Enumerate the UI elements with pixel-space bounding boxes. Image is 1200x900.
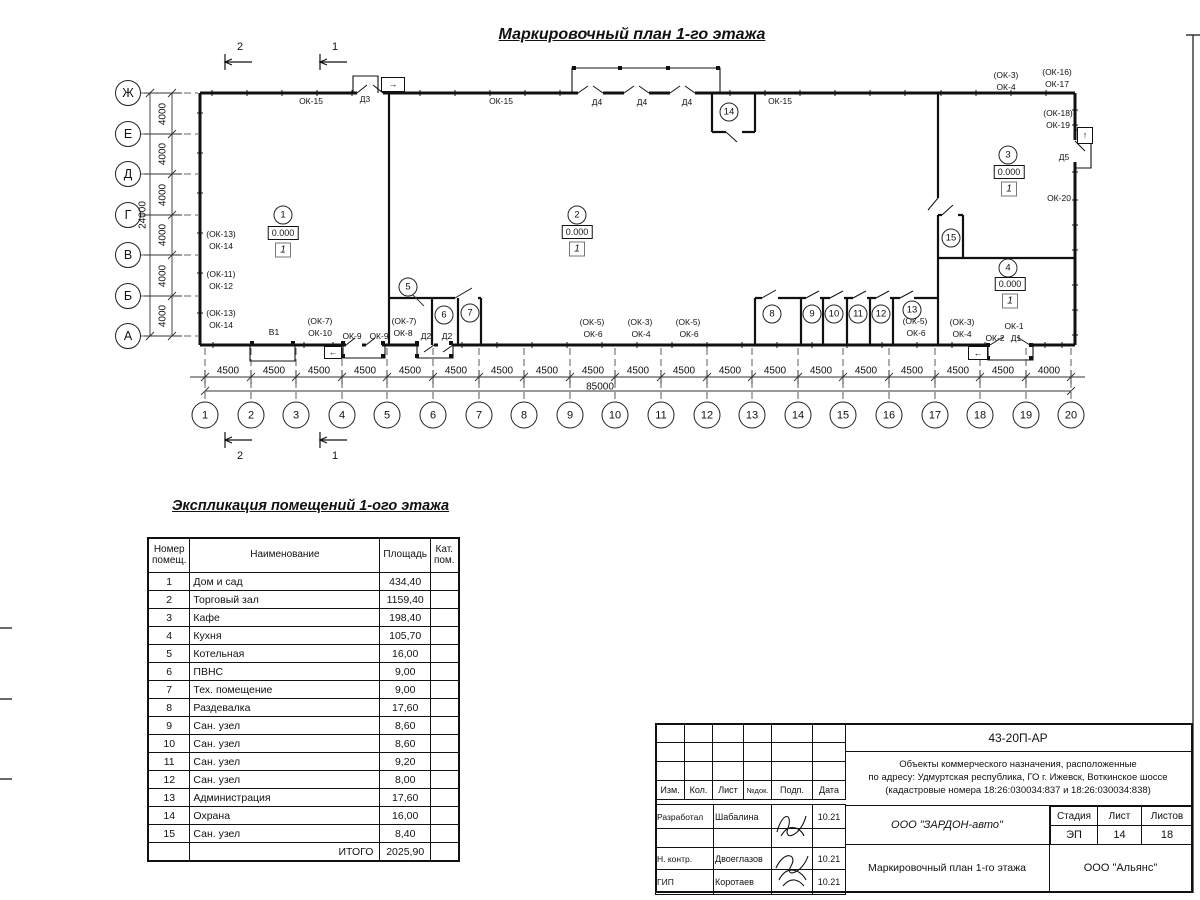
column-axis-bubble: 4: [329, 402, 356, 429]
wall-opening-label: Д4: [637, 97, 647, 107]
title-block: Изм. Кол. Лист №док. Подп. Дата Разработ…: [655, 723, 1193, 893]
room-number-marker: 4: [999, 259, 1018, 278]
table-row: 10 Сан. узел 8,60: [148, 735, 459, 753]
room-category-cell: [430, 645, 458, 663]
table-row: 14 Охрана 16,00: [148, 807, 459, 825]
room-number-cell: 14: [148, 807, 190, 825]
table-row: 12 Сан. узел 8,00: [148, 771, 459, 789]
room-area-cell: 8,00: [380, 771, 431, 789]
room-number-marker: 7: [461, 304, 480, 323]
elevation-value: 0.000: [994, 165, 1025, 179]
empty-cell: [148, 843, 190, 862]
rev-col-data: Дата: [813, 781, 846, 800]
wall-opening-label: (ОК-13): [206, 229, 236, 239]
dimension-label: 4500: [263, 366, 285, 377]
room-number-marker: 5: [399, 278, 418, 297]
room-number-cell: 9: [148, 717, 190, 735]
room-name-cell: Сан. узел: [190, 825, 380, 843]
column-axis-bubble: 17: [922, 402, 949, 429]
section-mark-number: 1: [332, 450, 338, 462]
table-row: 3 Кафе 198,40: [148, 609, 459, 627]
dimension-label: 4000: [158, 265, 169, 287]
section-mark-number: 2: [237, 450, 243, 462]
dimension-label: 4500: [673, 366, 695, 377]
document-code: 43-20П-АР: [845, 725, 1191, 752]
wall-opening-label: (ОК-13): [206, 308, 236, 318]
room-area-cell: 17,60: [380, 789, 431, 807]
column-axis-bubble: 5: [374, 402, 401, 429]
dimension-total-label: 85000: [586, 382, 614, 393]
column-axis-bubble: 11: [648, 402, 675, 429]
organization-name: ООО "ЗАРДОН-авто": [845, 806, 1050, 845]
wall-opening-label: ОК-1: [1004, 321, 1023, 331]
row-axis-bubble: В: [115, 242, 141, 268]
description-line: Объекты коммерческого назначения, распол…: [899, 759, 1136, 772]
room-name-cell: Сан. узел: [190, 771, 380, 789]
table-header-row: Номер помещ. Наименование Площадь Кат. п…: [148, 538, 459, 573]
date-cell: 10.21: [813, 848, 846, 870]
sheet-title: Маркировочный план 1-го этажа: [845, 845, 1050, 891]
column-axis-bubble: 1: [192, 402, 219, 429]
room-name-cell: Охрана: [190, 807, 380, 825]
dimension-label: 4000: [158, 143, 169, 165]
wall-opening-label: (ОК-18): [1043, 108, 1073, 118]
wall-opening-label: Д3: [360, 94, 370, 104]
room-category-cell: [430, 591, 458, 609]
wall-opening-label: (ОК-3): [994, 70, 1019, 80]
list-value: 14: [1098, 826, 1142, 845]
room-area-cell: 9,00: [380, 663, 431, 681]
rev-col-ndok: №док.: [744, 781, 772, 800]
total-label: ИТОГО: [190, 843, 380, 862]
wall-opening-label: Д4: [592, 97, 602, 107]
room-name-cell: Котельная: [190, 645, 380, 663]
role-cell: ГИП: [656, 870, 714, 895]
room-number-cell: 6: [148, 663, 190, 681]
room-number-marker: 14: [720, 103, 739, 122]
name-cell: [714, 829, 772, 848]
room-number-marker: 15: [942, 229, 961, 248]
column-axis-bubble: 20: [1058, 402, 1085, 429]
room-name-cell: Сан. узел: [190, 735, 380, 753]
wall-opening-label: (ОК-11): [207, 269, 236, 279]
floor-type-marker: 1: [1001, 182, 1017, 197]
wall-opening-label: (ОК-16): [1042, 67, 1072, 77]
wall-opening-label: ОК-4: [631, 329, 650, 339]
wall-opening-label: ОК-19: [1046, 120, 1070, 130]
empty-cell: [430, 843, 458, 862]
wall-opening-label: (ОК-5): [676, 317, 701, 327]
room-number-marker: 2: [568, 206, 587, 225]
direction-arrow-icon: ←: [968, 346, 988, 360]
wall-opening-label: ОК-15: [768, 96, 792, 106]
date-cell: 10.21: [813, 805, 846, 829]
room-number-marker: 12: [872, 305, 891, 324]
dimension-label: 4000: [158, 103, 169, 125]
room-category-cell: [430, 735, 458, 753]
floor-type-marker: 1: [275, 243, 291, 258]
room-category-cell: [430, 825, 458, 843]
room-number-cell: 4: [148, 627, 190, 645]
wall-opening-label: ОК-4: [996, 82, 1015, 92]
room-number-cell: 8: [148, 699, 190, 717]
table-row: 2 Торговый зал 1159,40: [148, 591, 459, 609]
room-number-cell: 7: [148, 681, 190, 699]
elevation-value: 0.000: [268, 226, 299, 240]
room-number-marker: 1: [274, 206, 293, 225]
wall-opening-label: (ОК-3): [628, 317, 653, 327]
col-header-name: Наименование: [190, 538, 380, 573]
wall-opening-label: ОК-10: [308, 328, 332, 338]
plan-title: Маркировочный план 1-го этажа: [499, 26, 766, 44]
room-category-cell: [430, 699, 458, 717]
room-name-cell: Раздевалка: [190, 699, 380, 717]
room-category-cell: [430, 573, 458, 591]
dimension-label: 4500: [764, 366, 786, 377]
dimension-label: 4000: [1038, 366, 1060, 377]
room-number-cell: 15: [148, 825, 190, 843]
floor-type-marker: 1: [1002, 294, 1018, 309]
room-number-cell: 11: [148, 753, 190, 771]
direction-arrow-icon: →: [381, 77, 405, 92]
name-cell: Шабалина: [714, 805, 772, 829]
dimension-label: 4500: [855, 366, 877, 377]
room-area-cell: 16,00: [380, 807, 431, 825]
room-area-cell: 8,40: [380, 825, 431, 843]
room-area-cell: 17,60: [380, 699, 431, 717]
table-row: 8 Раздевалка 17,60: [148, 699, 459, 717]
room-number-cell: 13: [148, 789, 190, 807]
room-category-cell: [430, 663, 458, 681]
signature-row: [656, 829, 846, 848]
column-axis-bubble: 13: [739, 402, 766, 429]
room-number-cell: 5: [148, 645, 190, 663]
wall-opening-label: ОК-6: [583, 329, 602, 339]
dimension-label: 4000: [158, 224, 169, 246]
room-area-cell: 105,70: [380, 627, 431, 645]
table-row: 1 Дом и сад 434,40: [148, 573, 459, 591]
signature-scribble: [771, 806, 812, 891]
role-cell: [656, 829, 714, 848]
wall-opening-label: ОК-14: [209, 320, 233, 330]
wall-opening-label: ОК-12: [209, 281, 233, 291]
total-value: 2025,90: [380, 843, 431, 862]
row-axis-bubble: А: [115, 323, 141, 349]
dimension-label: 4500: [217, 366, 239, 377]
table-row: 9 Сан. узел 8,60: [148, 717, 459, 735]
dimension-label: 4500: [354, 366, 376, 377]
wall-opening-label: Д1: [1011, 333, 1021, 343]
wall-opening-label: ОК-6: [906, 328, 925, 338]
column-axis-bubble: 7: [466, 402, 493, 429]
table-total-row: ИТОГО 2025,90: [148, 843, 459, 862]
dimension-label: 4500: [445, 366, 467, 377]
room-name-cell: Дом и сад: [190, 573, 380, 591]
room-name-cell: Сан. узел: [190, 753, 380, 771]
room-category-cell: [430, 807, 458, 825]
stage-header: Стадия: [1051, 807, 1098, 826]
elevation-value: 0.000: [995, 277, 1026, 291]
dimension-label: 4500: [719, 366, 741, 377]
section-mark-number: 1: [332, 41, 338, 53]
signature-row: Разработал Шабалина 10.21: [656, 805, 846, 829]
room-area-cell: 9,00: [380, 681, 431, 699]
room-name-cell: Администрация: [190, 789, 380, 807]
room-name-cell: Кафе: [190, 609, 380, 627]
wall-opening-label: ОК-15: [489, 96, 513, 106]
wall-opening-label: ОК-17: [1045, 79, 1069, 89]
column-axis-bubble: 8: [511, 402, 538, 429]
room-category-cell: [430, 609, 458, 627]
company-name: ООО "Альянс": [1050, 845, 1191, 891]
dimension-label: 4500: [491, 366, 513, 377]
table-row: 11 Сан. узел 9,20: [148, 753, 459, 771]
dimension-label: 4000: [158, 305, 169, 327]
plan-annotations: ОК-15Д3ОК-15Д4Д4Д4ОК-15(ОК-3)ОК-4(ОК-16)…: [0, 0, 1200, 470]
name-cell: Двоеглазов: [714, 848, 772, 870]
row-axis-bubble: Д: [115, 161, 141, 187]
wall-opening-label: ОК-6: [679, 329, 698, 339]
rev-col-kol: Кол.: [685, 781, 713, 800]
direction-arrow-icon: ↑: [1077, 127, 1093, 144]
room-category-cell: [430, 789, 458, 807]
column-axis-bubble: 9: [557, 402, 584, 429]
col-header-area: Площадь: [380, 538, 431, 573]
column-axis-bubble: 3: [283, 402, 310, 429]
room-category-cell: [430, 753, 458, 771]
dimension-label: 4000: [158, 184, 169, 206]
wall-opening-label: Д2: [421, 331, 431, 341]
room-area-cell: 8,60: [380, 717, 431, 735]
rev-col-podp: Подп.: [772, 781, 813, 800]
dimension-label: 4500: [399, 366, 421, 377]
listov-header: Листов: [1142, 807, 1193, 826]
dimension-label: 4500: [308, 366, 330, 377]
room-number-marker: 13: [903, 301, 922, 320]
explication-table: Номер помещ. Наименование Площадь Кат. п…: [147, 537, 460, 862]
role-cell: Н. контр.: [656, 848, 714, 870]
dimension-label: 4500: [992, 366, 1014, 377]
room-area-cell: 198,40: [380, 609, 431, 627]
explication-title: Экспликация помещений 1-ого этажа: [172, 498, 449, 514]
dimension-label: 4500: [536, 366, 558, 377]
wall-opening-label: В1: [269, 327, 279, 337]
wall-opening-label: ОК-2: [985, 333, 1004, 343]
wall-opening-label: ОК-4: [952, 329, 971, 339]
wall-opening-label: ОК-20: [1047, 193, 1071, 203]
wall-opening-label: (ОК-7): [392, 316, 417, 326]
rev-col-list: Лист: [713, 781, 744, 800]
table-row: 13 Администрация 17,60: [148, 789, 459, 807]
description-line: (кадастровые номера 18:26:030034:837 и 1…: [885, 785, 1151, 798]
wall-opening-label: (ОК-7): [308, 316, 333, 326]
room-area-cell: 434,40: [380, 573, 431, 591]
revision-header-row: Изм. Кол. Лист №док. Подп. Дата: [656, 781, 846, 800]
dimension-label: 4500: [810, 366, 832, 377]
table-row: 4 Кухня 105,70: [148, 627, 459, 645]
column-axis-bubble: 10: [602, 402, 629, 429]
rev-col-izm: Изм.: [656, 781, 685, 800]
room-number-cell: 12: [148, 771, 190, 789]
room-name-cell: Тех. помещение: [190, 681, 380, 699]
elevation-value: 0.000: [562, 225, 593, 239]
room-category-cell: [430, 681, 458, 699]
signature-rows: Разработал Шабалина 10.21 Н. контр. Двое…: [655, 804, 846, 895]
room-number-cell: 10: [148, 735, 190, 753]
room-area-cell: 9,20: [380, 753, 431, 771]
room-number-marker: 8: [763, 305, 782, 324]
room-name-cell: Сан. узел: [190, 717, 380, 735]
room-number-cell: 2: [148, 591, 190, 609]
description-line: по адресу: Удмуртская республика, ГО г. …: [868, 772, 1167, 785]
column-axis-bubble: 16: [876, 402, 903, 429]
date-cell: [813, 829, 846, 848]
dimension-label: 4500: [901, 366, 923, 377]
project-description: Объекты коммерческого назначения, распол…: [845, 752, 1191, 806]
role-cell: Разработал: [656, 805, 714, 829]
list-header: Лист: [1098, 807, 1142, 826]
wall-opening-label: ОК-9: [369, 331, 388, 341]
listov-value: 18: [1142, 826, 1193, 845]
wall-opening-label: (ОК-3): [950, 317, 975, 327]
room-number-marker: 10: [825, 305, 844, 324]
room-name-cell: ПВНС: [190, 663, 380, 681]
table-row: 15 Сан. узел 8,40: [148, 825, 459, 843]
table-row: 7 Тех. помещение 9,00: [148, 681, 459, 699]
signature-row: ГИП Коротаев 10.21: [656, 870, 846, 895]
row-axis-bubble: Е: [115, 121, 141, 147]
direction-arrow-icon: ←: [324, 346, 342, 359]
row-axis-bubble: Б: [115, 283, 141, 309]
wall-opening-label: (ОК-5): [580, 317, 605, 327]
column-axis-bubble: 12: [694, 402, 721, 429]
wall-opening-label: ОК-9: [342, 331, 361, 341]
column-axis-bubble: 14: [785, 402, 812, 429]
name-cell: Коротаев: [714, 870, 772, 895]
wall-opening-label: ОК-8: [393, 328, 412, 338]
room-category-cell: [430, 771, 458, 789]
dimension-total-label: 24000: [138, 201, 149, 229]
wall-opening-label: ОК-15: [299, 96, 323, 106]
room-category-cell: [430, 717, 458, 735]
room-category-cell: [430, 627, 458, 645]
wall-opening-label: Д2: [442, 331, 452, 341]
wall-opening-label: Д4: [682, 97, 692, 107]
wall-opening-label: ОК-14: [209, 241, 233, 251]
column-axis-bubble: 2: [238, 402, 265, 429]
column-axis-bubble: 19: [1013, 402, 1040, 429]
room-number-cell: 3: [148, 609, 190, 627]
floor-type-marker: 1: [569, 242, 585, 257]
signature-row: Н. контр. Двоеглазов 10.21: [656, 848, 846, 870]
col-header-number: Номер помещ.: [148, 538, 190, 573]
column-axis-bubble: 18: [967, 402, 994, 429]
room-number-cell: 1: [148, 573, 190, 591]
room-number-marker: 11: [849, 305, 868, 324]
room-name-cell: Кухня: [190, 627, 380, 645]
dimension-label: 4500: [947, 366, 969, 377]
stage-grid: Стадия Лист Листов ЭП 14 18: [1050, 806, 1193, 845]
room-area-cell: 8,60: [380, 735, 431, 753]
revision-grid: Изм. Кол. Лист №док. Подп. Дата: [655, 723, 846, 800]
col-header-category: Кат. пом.: [430, 538, 458, 573]
room-number-marker: 6: [435, 306, 454, 325]
section-mark-number: 2: [237, 41, 243, 53]
room-area-cell: 16,00: [380, 645, 431, 663]
column-axis-bubble: 15: [830, 402, 857, 429]
wall-opening-label: Д5: [1059, 152, 1069, 162]
room-number-marker: 9: [803, 305, 822, 324]
room-number-marker: 3: [999, 146, 1018, 165]
column-axis-bubble: 6: [420, 402, 447, 429]
room-area-cell: 1159,40: [380, 591, 431, 609]
room-name-cell: Торговый зал: [190, 591, 380, 609]
date-cell: 10.21: [813, 870, 846, 895]
table-row: 6 ПВНС 9,00: [148, 663, 459, 681]
dimension-label: 4500: [582, 366, 604, 377]
dimension-label: 4500: [627, 366, 649, 377]
stage-value: ЭП: [1051, 826, 1098, 845]
row-axis-bubble: Ж: [115, 80, 141, 106]
drawing-sheet: ОК-15Д3ОК-15Д4Д4Д4ОК-15(ОК-3)ОК-4(ОК-16)…: [0, 0, 1200, 900]
table-row: 5 Котельная 16,00: [148, 645, 459, 663]
